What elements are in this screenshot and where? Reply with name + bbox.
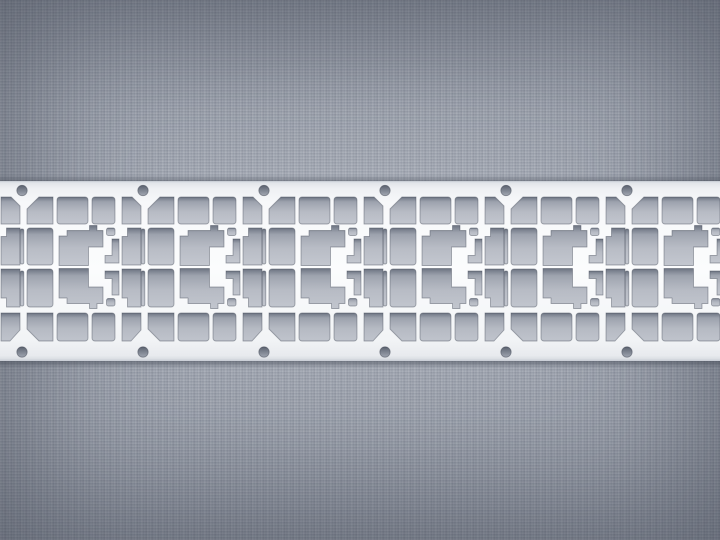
strip-top-edge <box>0 181 720 182</box>
bottom-pad-wide-cutout <box>662 313 693 341</box>
hook-square-bottom-cutout <box>349 299 358 307</box>
top-pad-narrow-cutout <box>334 197 357 224</box>
bottom-pad-narrow-cutout <box>334 313 357 341</box>
etched-cell <box>383 197 504 341</box>
bottom-pad-wide-cutout <box>178 313 209 341</box>
top-pad-narrow-cutout <box>213 197 236 224</box>
sprocket-hole-bottom <box>501 347 511 357</box>
hook-square-top-cutout <box>228 228 237 236</box>
etched-cell <box>20 197 141 341</box>
top-pad-narrow-cutout <box>697 197 720 224</box>
top-pad-wide-cutout <box>299 197 330 224</box>
junction-slit-bottom-cutout <box>625 271 629 306</box>
top-pad-wide-cutout <box>541 197 572 224</box>
top-pad-wide-cutout <box>178 197 209 224</box>
strip-bottom-edge <box>0 360 720 361</box>
junction-slit-top-cutout <box>141 229 145 264</box>
bottom-pad-wide-cutout <box>541 313 572 341</box>
junction-slit-bottom-cutout <box>20 271 24 306</box>
etched-cell <box>141 197 262 341</box>
junction-slit-top-cutout <box>20 229 24 264</box>
top-pad-narrow-cutout <box>92 197 115 224</box>
left-pad-row3-cutout <box>632 269 658 307</box>
left-pad-row2-cutout <box>27 228 53 265</box>
junction-slit-top-cutout <box>625 229 629 264</box>
hook-square-bottom-cutout <box>591 299 600 307</box>
top-pad-wide-cutout <box>662 197 693 224</box>
bottom-pad-wide-cutout <box>57 313 88 341</box>
bottom-pad-wide-cutout <box>299 313 330 341</box>
etched-cell <box>504 197 625 341</box>
bottom-pad-narrow-cutout <box>576 313 599 341</box>
sprocket-hole-top <box>17 185 27 195</box>
junction-slit-top-cutout <box>262 229 266 264</box>
hook-square-top-cutout <box>349 228 358 236</box>
sprocket-hole-bottom <box>622 347 632 357</box>
sprocket-hole-bottom <box>17 347 27 357</box>
bottom-pad-narrow-cutout <box>455 313 478 341</box>
junction-slit-bottom-cutout <box>262 271 266 306</box>
sprocket-hole-top <box>622 185 632 195</box>
bottom-pad-narrow-cutout <box>92 313 115 341</box>
left-pad-row3-cutout <box>269 269 295 307</box>
bottom-pad-narrow-cutout <box>697 313 720 341</box>
sprocket-hole-bottom <box>259 347 269 357</box>
hook-square-bottom-cutout <box>712 299 720 307</box>
junction-slit-bottom-cutout <box>141 271 145 306</box>
etched-cell <box>0 197 20 341</box>
sprocket-hole-top <box>138 185 148 195</box>
bottom-pad-narrow-cutout <box>213 313 236 341</box>
left-pad-row2-cutout <box>148 228 174 265</box>
top-pad-narrow-cutout <box>455 197 478 224</box>
hook-square-bottom-cutout <box>470 299 479 307</box>
left-pad-row3-cutout <box>27 269 53 307</box>
strip-contact-shadow-top <box>0 175 720 181</box>
hook-square-top-cutout <box>712 228 720 236</box>
left-pad-row2-cutout <box>511 228 537 265</box>
bottom-pad-wide-cutout <box>420 313 451 341</box>
hook-square-top-cutout <box>107 228 116 236</box>
hook-square-top-cutout <box>470 228 479 236</box>
hook-square-bottom-cutout <box>107 299 116 307</box>
hook-square-top-cutout <box>591 228 600 236</box>
sprocket-hole-bottom <box>138 347 148 357</box>
photo <box>0 0 720 540</box>
left-pad-row3-cutout <box>511 269 537 307</box>
top-pad-narrow-cutout <box>576 197 599 224</box>
etched-cell <box>262 197 383 341</box>
sprocket-hole-top <box>501 185 511 195</box>
metal-strip <box>0 0 720 540</box>
junction-slit-bottom-cutout <box>383 271 387 306</box>
hook-square-bottom-cutout <box>228 299 237 307</box>
junction-slit-top-cutout <box>383 229 387 264</box>
sprocket-hole-top <box>259 185 269 195</box>
junction-slit-top-cutout <box>504 229 508 264</box>
left-pad-row2-cutout <box>269 228 295 265</box>
strip-contact-shadow-bottom <box>0 361 720 368</box>
top-pad-wide-cutout <box>57 197 88 224</box>
top-pad-wide-cutout <box>420 197 451 224</box>
left-pad-row3-cutout <box>148 269 174 307</box>
left-pad-row2-cutout <box>632 228 658 265</box>
left-pad-row3-cutout <box>390 269 416 307</box>
sprocket-hole-top <box>380 185 390 195</box>
junction-slit-bottom-cutout <box>504 271 508 306</box>
sprocket-hole-bottom <box>380 347 390 357</box>
left-pad-row2-cutout <box>390 228 416 265</box>
